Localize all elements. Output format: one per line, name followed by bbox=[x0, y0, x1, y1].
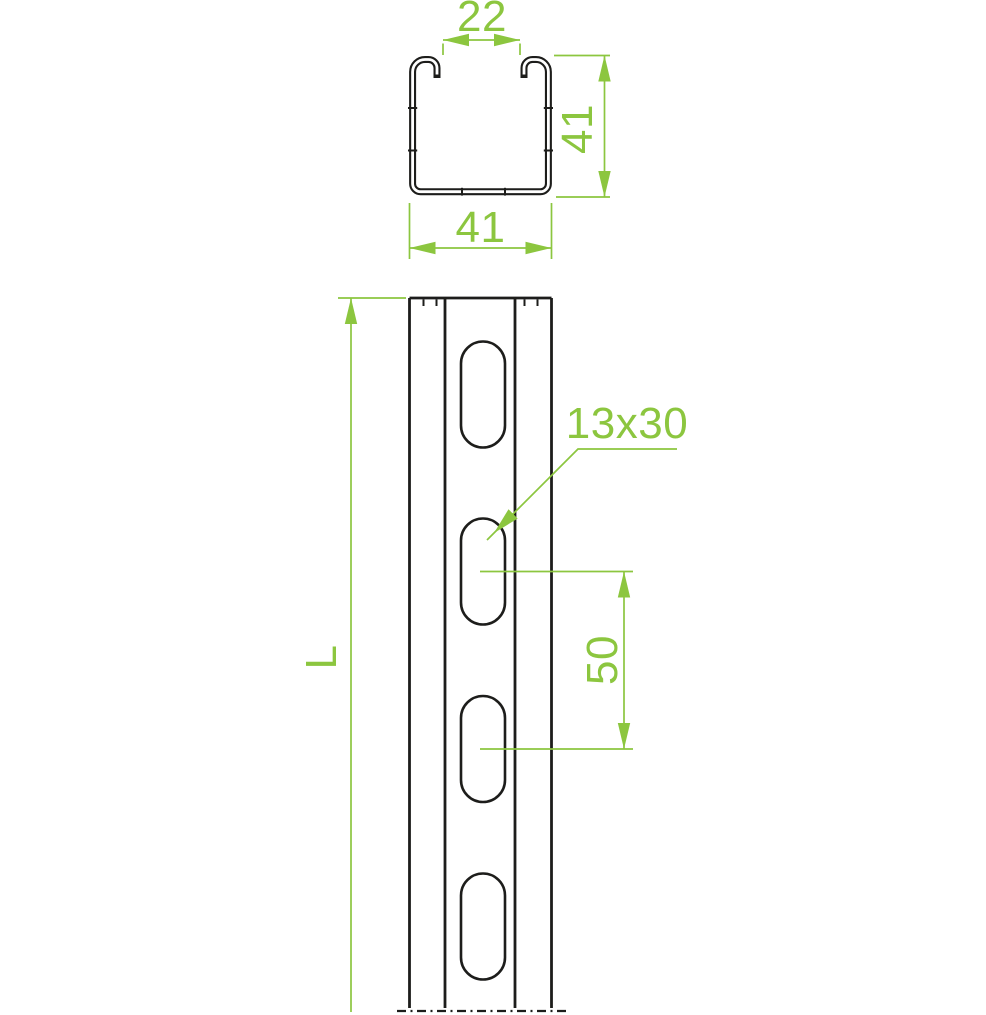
dim-opening-width-label: 22 bbox=[457, 0, 507, 41]
dim-length-lines bbox=[338, 298, 406, 1012]
arrowhead-up bbox=[345, 298, 357, 324]
channel-profile-outline bbox=[413, 60, 549, 192]
slot-4 bbox=[461, 874, 505, 980]
dim-slot-spacing-label: 50 bbox=[578, 635, 627, 685]
front-view-body bbox=[397, 298, 568, 1011]
dim-height-label: 41 bbox=[553, 104, 602, 154]
arrowhead-down bbox=[598, 171, 610, 197]
arrowhead-left bbox=[410, 242, 436, 254]
slot-perforations bbox=[461, 342, 505, 980]
arrowhead-right bbox=[526, 242, 552, 254]
arrowhead-up bbox=[598, 56, 610, 82]
bend-tick-marks bbox=[408, 108, 553, 196]
slot-1 bbox=[461, 342, 505, 448]
dimension-linework bbox=[338, 40, 677, 1012]
arrowhead-up bbox=[618, 572, 630, 598]
top-edge-lip-ticks bbox=[424, 299, 538, 306]
channel-profile-core bbox=[413, 60, 549, 192]
cross-section-profile-outer bbox=[413, 60, 549, 192]
slot-size-label: 13x30 bbox=[566, 399, 688, 448]
technical-drawing-canvas: 22 41 41 L 13x30 50 bbox=[0, 0, 986, 1015]
dim-length-label: L bbox=[297, 645, 346, 670]
cross-section-profile-core bbox=[413, 60, 549, 192]
arrowhead-down bbox=[618, 723, 630, 749]
dim-width-label: 41 bbox=[456, 203, 506, 252]
